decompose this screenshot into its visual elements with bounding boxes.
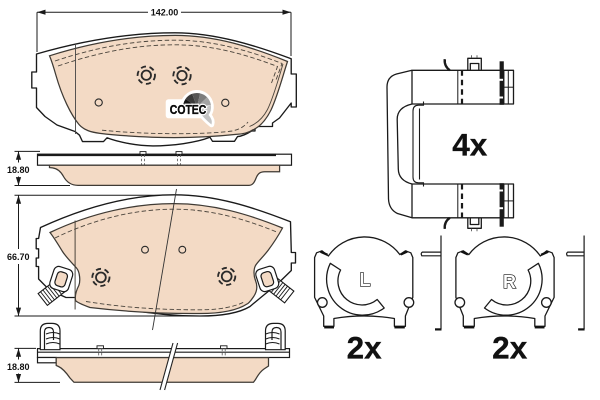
svg-text:4x: 4x xyxy=(452,127,488,163)
svg-text:18.80: 18.80 xyxy=(7,362,30,372)
svg-text:18.80: 18.80 xyxy=(7,165,30,175)
svg-text:2x: 2x xyxy=(347,330,383,366)
svg-text:66.70: 66.70 xyxy=(7,252,30,262)
svg-text:R: R xyxy=(503,272,516,292)
svg-text:142.00: 142.00 xyxy=(151,8,179,18)
svg-text:2x: 2x xyxy=(492,330,528,366)
svg-text:COTEC: COTEC xyxy=(170,102,207,117)
svg-text:L: L xyxy=(360,270,371,290)
